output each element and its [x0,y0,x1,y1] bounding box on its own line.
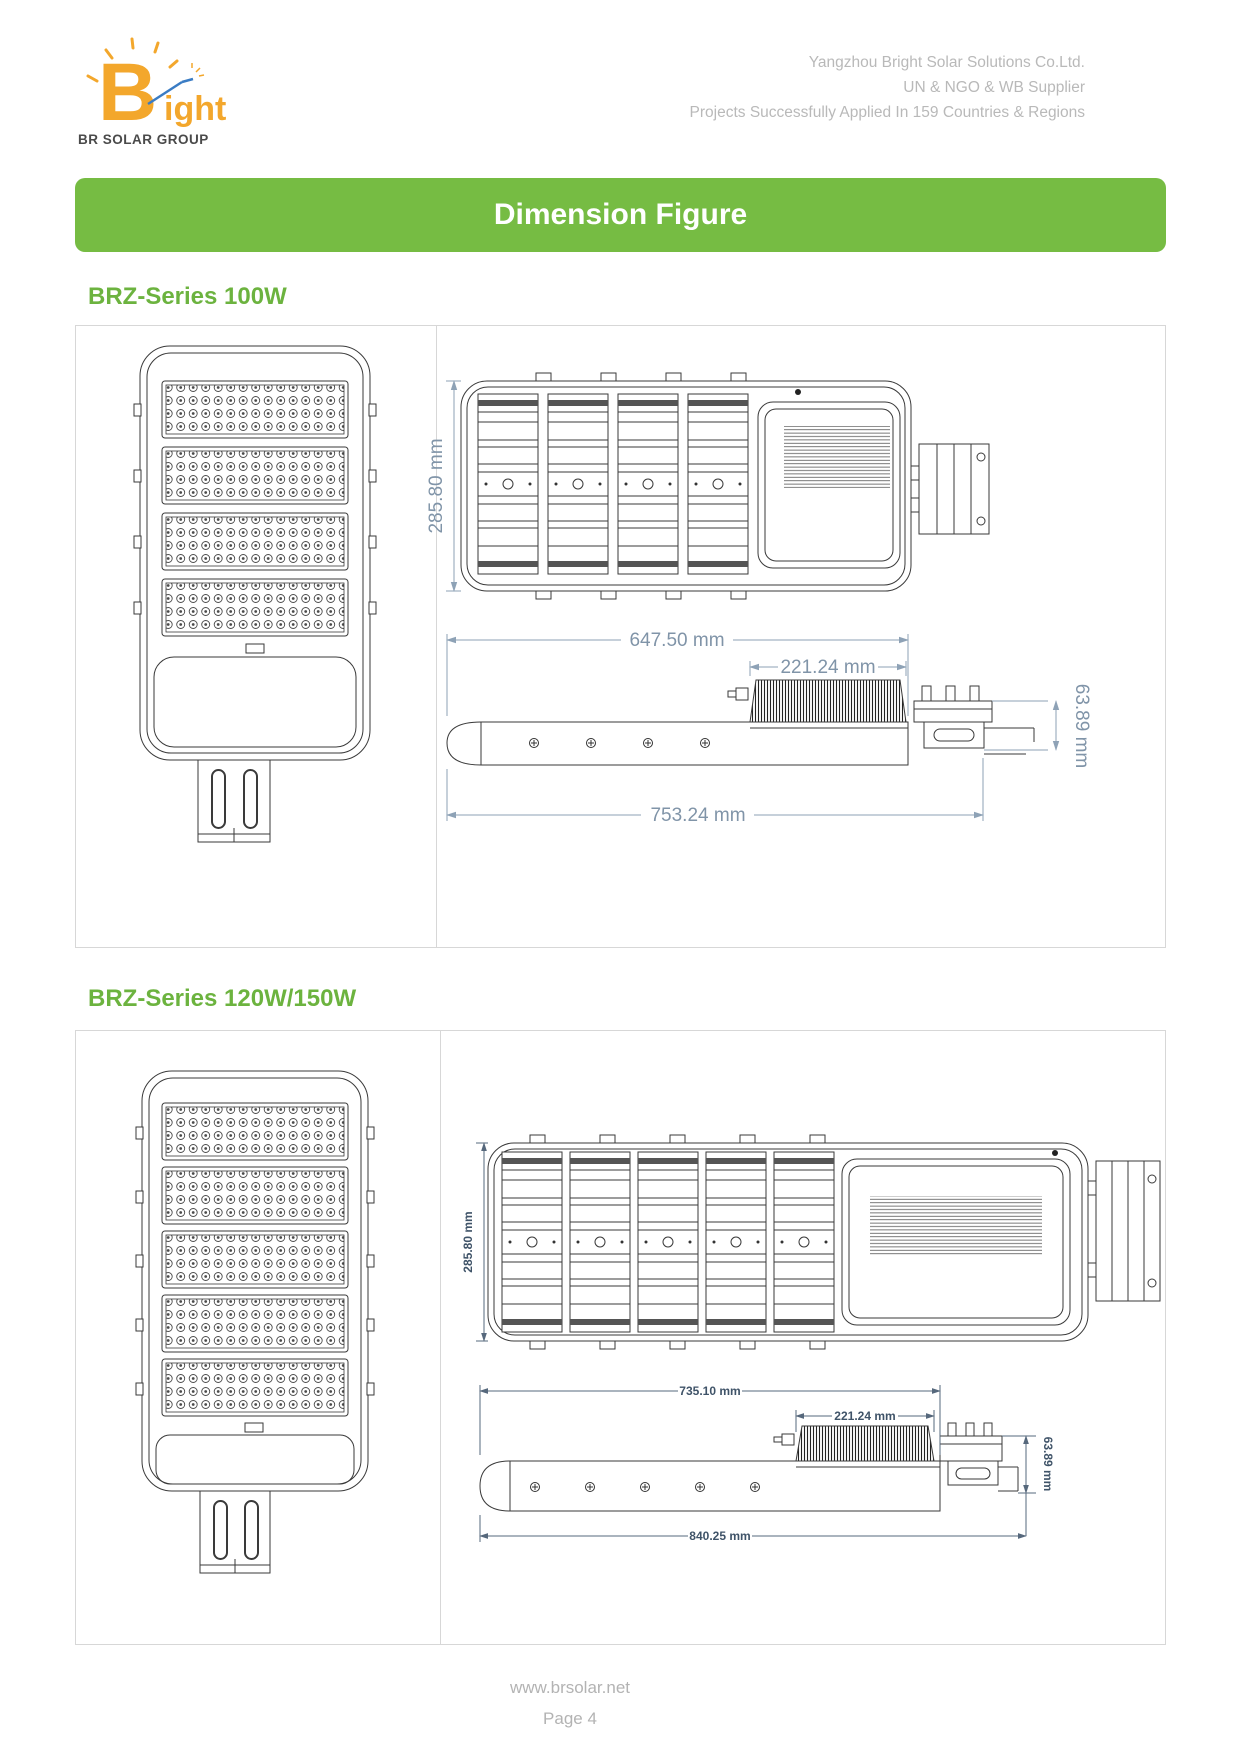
dim-label-overall-length: 753.24 mm [650,805,745,826]
screw-icon [587,739,596,748]
side-view-drawing [480,1423,1018,1511]
top-view-drawing [488,1135,1160,1349]
led-column [548,394,608,574]
led-module [162,513,348,570]
logo-letters-rest: ight [164,90,226,128]
footer-website: www.brsolar.net [0,1672,1140,1703]
front-view-drawing-100w [76,326,436,947]
company-line: Projects Successfully Applied In 159 Cou… [690,100,1085,125]
bracket-plate [940,1436,1002,1461]
screw-icon [586,1483,595,1492]
screw-icon [530,739,539,748]
logo-subtitle: BR SOLAR GROUP [78,132,292,147]
page-footer: www.brsolar.net Page 4 [0,1672,1140,1734]
dim-label-heatsink: 221.24 mm [834,1409,895,1423]
led-column [774,1152,834,1332]
front-view-cell [76,326,436,947]
led-column [706,1152,766,1332]
led-module [162,447,348,504]
page: B ight BR SOLAR GROUP Yangzhou Bright So… [0,0,1241,1754]
company-line: Yangzhou Bright Solar Solutions Co.Ltd. [690,50,1085,75]
led-column [570,1152,630,1332]
dim-label-body-length: 735.10 mm [679,1384,740,1398]
top-side-view-drawing-100w: 285.80 mm [436,326,1165,947]
screw-icon [641,1483,650,1492]
led-column [478,394,538,574]
screw-icon [531,1483,540,1492]
lamp-glow-icon [192,63,204,76]
led-column [502,1152,562,1332]
led-module [162,1359,348,1416]
pole-clamp [948,1461,998,1485]
pole-clamp [924,722,984,748]
screw-icon [751,1483,760,1492]
heatsink [796,1426,934,1461]
dim-label-heatsink: 221.24 mm [780,657,875,678]
led-module [162,1103,348,1160]
top-side-view-drawing-120w: 285.80 mm [440,1031,1166,1644]
logo-letter-b: B [98,47,157,138]
dim-label-body-length: 647.50 mm [629,630,724,651]
dim-label-top-height: 285.80 mm [461,1211,475,1272]
sun-b-logo-icon: B ight [72,30,282,130]
led-module [162,1295,348,1352]
height-dimension [476,1143,488,1341]
section-heading-100w: BRZ-Series 100W [88,283,287,311]
led-module [162,579,348,636]
dim-label-top-height: 285.80 mm [426,438,447,533]
led-module [162,1231,348,1288]
top-view-drawing [461,373,989,599]
led-module [162,1167,348,1224]
company-line: UN & NGO & WB Supplier [690,75,1085,100]
section-banner: Dimension Figure [75,178,1166,252]
bracket-plate [914,701,992,722]
section-heading-120w-150w: BRZ-Series 120W/150W [88,985,356,1013]
led-column [688,394,748,574]
dim-label-overall-length: 840.25 mm [689,1529,750,1543]
dimension-panel-120w-150w: 285.80 mm [75,1030,1166,1645]
dim-label-bracket-height: 63.89 mm [1071,684,1092,768]
top-side-view-cell: 285.80 mm [440,1031,1166,1644]
side-view-drawing [447,680,1034,765]
company-info: Yangzhou Bright Solar Solutions Co.Ltd. … [690,50,1085,125]
screw-icon [696,1483,705,1492]
led-column [618,394,678,574]
lamp-body-side [480,1461,940,1511]
led-module [162,381,348,438]
height-dimension [446,381,461,591]
heatsink [750,680,906,722]
front-view-cell [76,1031,440,1644]
top-side-view-cell: 285.80 mm [436,326,1165,947]
front-view-drawing-120w [76,1031,440,1644]
dimension-panel-100w: 285.80 mm [75,325,1166,948]
footer-page-number: Page 4 [0,1703,1140,1734]
screw-icon [644,739,653,748]
dim-label-bracket-height: 63.89 mm [1041,1437,1055,1492]
screw-icon [701,739,710,748]
brand-logo: B ight BR SOLAR GROUP [72,30,292,147]
banner-title: Dimension Figure [494,198,747,232]
led-column [638,1152,698,1332]
